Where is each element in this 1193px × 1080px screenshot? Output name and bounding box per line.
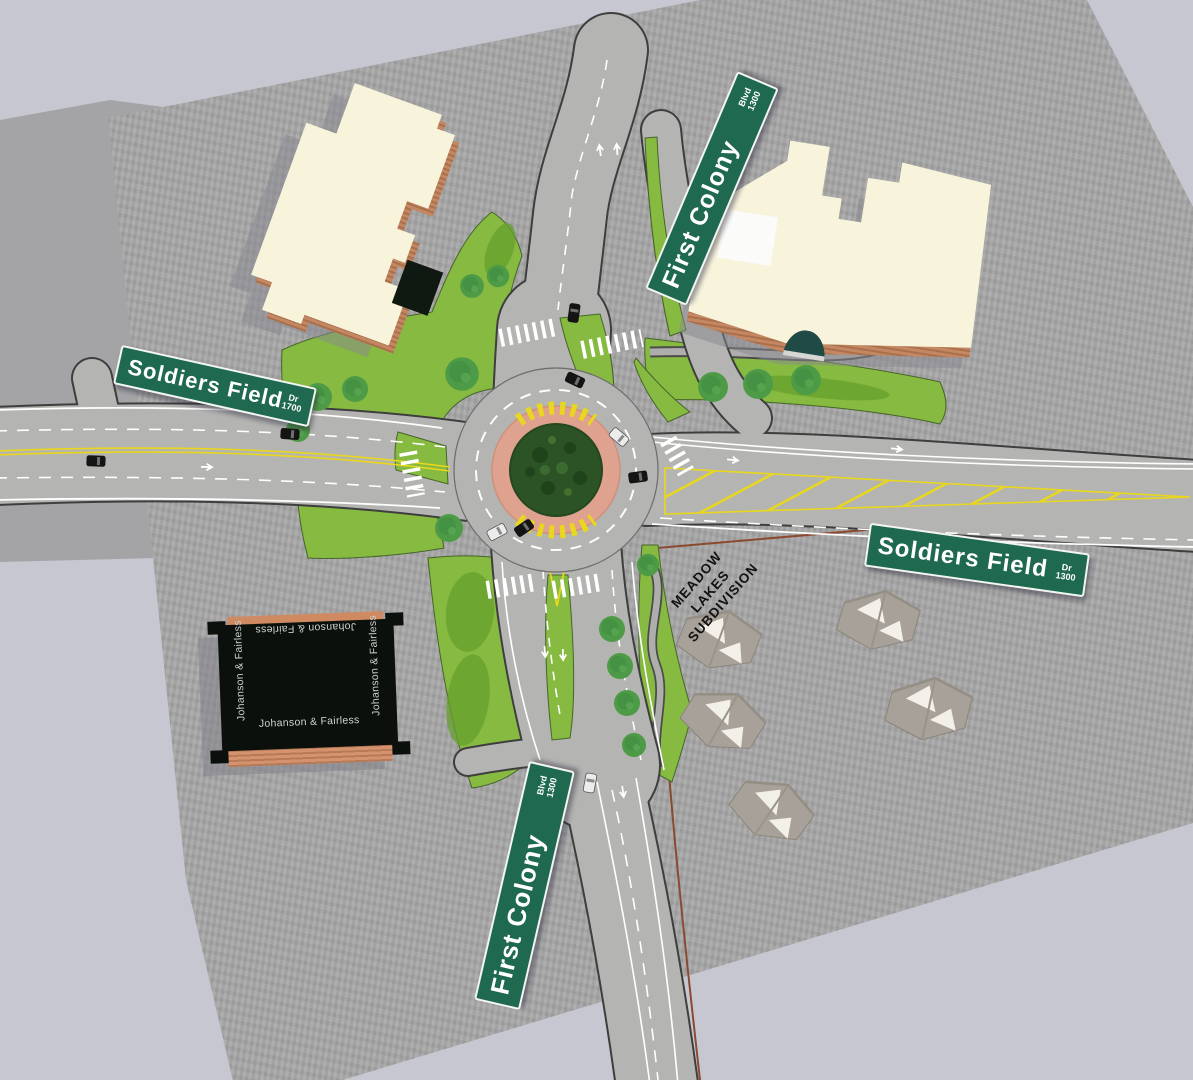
street-sign-sub: Blvd 1300 xyxy=(536,775,559,799)
street-sign-sub: Dr 1300 xyxy=(1055,562,1077,583)
roof-corner-tab xyxy=(392,741,410,755)
street-block: 1300 xyxy=(1055,571,1076,583)
street-block: 1300 xyxy=(545,777,559,799)
roof-equipment-panel xyxy=(717,209,778,266)
roundabout xyxy=(454,368,658,572)
center-island-planting xyxy=(510,424,602,516)
subdivision-houses xyxy=(673,583,975,856)
roundabout-scene xyxy=(0,0,1193,1080)
street-sign-sub: Dr 1700 xyxy=(281,392,305,415)
street-block: 1700 xyxy=(281,401,303,415)
roof-corner-tab xyxy=(207,621,225,635)
roof-corner-tab xyxy=(210,750,228,764)
building-johanson-fairless: Johanson & Fairless Johanson & Fairless … xyxy=(215,611,401,770)
roof-corner-tab xyxy=(385,612,403,626)
site-plan-viewport[interactable]: Johanson & Fairless Johanson & Fairless … xyxy=(0,0,1193,1080)
